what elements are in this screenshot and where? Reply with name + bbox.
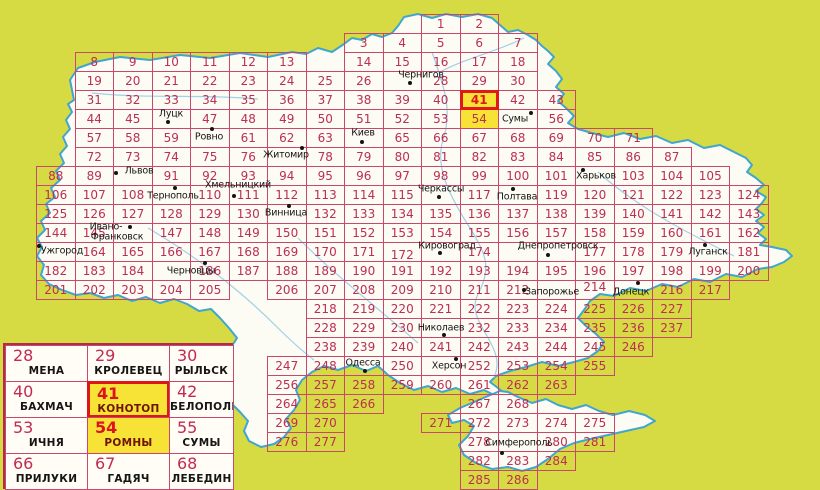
map-sheet-cell-206[interactable]: 206 [267, 280, 307, 300]
map-sheet-cell-20[interactable]: 20 [113, 71, 153, 91]
map-sheet-cell-201[interactable]: 201 [36, 280, 76, 300]
map-sheet-cell-204[interactable]: 204 [152, 280, 192, 300]
map-sheet-cell-136[interactable]: 136 [460, 204, 500, 224]
map-sheet-cell-24[interactable]: 24 [267, 71, 307, 91]
map-sheet-cell-257[interactable]: 257 [306, 375, 346, 395]
map-sheet-cell-160[interactable]: 160 [652, 223, 692, 243]
map-sheet-cell-40[interactable]: 40 [421, 90, 461, 110]
map-sheet-cell-148[interactable]: 148 [190, 223, 230, 243]
map-sheet-cell-100[interactable]: 100 [498, 166, 538, 186]
map-sheet-cell-245[interactable]: 245 [575, 337, 615, 357]
legend-sheet-name: ИЧНЯ [6, 437, 87, 449]
map-sheet-cell-117[interactable]: 117 [460, 185, 500, 205]
map-sheet-cell-233[interactable]: 233 [498, 318, 538, 338]
map-sheet-cell-42[interactable]: 42 [498, 90, 538, 110]
map-sheet-cell-61[interactable]: 61 [229, 128, 269, 148]
map-sheet-cell-129[interactable]: 129 [190, 204, 230, 224]
map-sheet-cell-260[interactable]: 260 [421, 375, 461, 395]
map-sheet-cell-56[interactable]: 56 [537, 109, 577, 129]
map-sheet-cell-191[interactable]: 191 [383, 261, 423, 281]
map-sheet-cell-8[interactable]: 8 [75, 52, 115, 72]
map-sheet-cell-88[interactable]: 88 [36, 166, 76, 186]
map-sheet-cell-57[interactable]: 57 [75, 128, 115, 148]
map-sheet-cell-76[interactable]: 76 [229, 147, 269, 167]
map-sheet-cell-189[interactable]: 189 [306, 261, 346, 281]
map-sheet-cell-198[interactable]: 198 [652, 261, 692, 281]
city-dot [37, 244, 41, 248]
map-sheet-cell-169[interactable]: 169 [267, 242, 307, 262]
city-label: Днепропетровск [518, 241, 599, 252]
map-sheet-cell-222[interactable]: 222 [460, 299, 500, 319]
map-sheet-cell-140[interactable]: 140 [614, 204, 654, 224]
legend-sheet-name: ГАДЯЧ [88, 473, 169, 485]
map-sheet-cell-11[interactable]: 11 [190, 52, 230, 72]
legend-sheet-number: 66 [6, 454, 87, 472]
map-sheet-cell-232[interactable]: 232 [460, 318, 500, 338]
map-sheet-cell-270[interactable]: 270 [306, 413, 346, 433]
city-label: Киев [351, 128, 375, 139]
legend-sheet-number: 30 [170, 346, 233, 364]
map-sheet-cell-81[interactable]: 81 [421, 147, 461, 167]
map-sheet-cell-12[interactable]: 12 [229, 52, 269, 72]
map-sheet-cell-261[interactable]: 261 [460, 375, 500, 395]
city-dot [363, 369, 367, 373]
map-sheet-cell-107[interactable]: 107 [75, 185, 115, 205]
map-sheet-cell-266[interactable]: 266 [344, 394, 384, 414]
map-sheet-cell-216[interactable]: 216 [652, 280, 692, 300]
map-sheet-cell-41[interactable]: 41 [460, 90, 500, 110]
map-sheet-cell-194[interactable]: 194 [498, 261, 538, 281]
map-sheet-cell-94[interactable]: 94 [267, 166, 307, 186]
map-sheet-cell-170[interactable]: 170 [306, 242, 346, 262]
map-sheet-cell-151[interactable]: 151 [306, 223, 346, 243]
legend-cell-68[interactable]: 68ЛЕБЕДИН [169, 453, 234, 490]
legend-cell-29[interactable]: 29КРОЛЕВЕЦ [87, 345, 170, 382]
map-sheet-cell-44[interactable]: 44 [75, 109, 115, 129]
map-sheet-cell-187[interactable]: 187 [229, 261, 269, 281]
map-sheet-cell-101[interactable]: 101 [537, 166, 577, 186]
city-label: Черкассы [418, 184, 464, 195]
map-sheet-cell-66[interactable]: 66 [421, 128, 461, 148]
map-sheet-cell-53[interactable]: 53 [421, 109, 461, 129]
map-sheet-cell-282[interactable]: 282 [460, 451, 500, 471]
map-sheet-cell-205[interactable]: 205 [190, 280, 230, 300]
map-sheet-cell-119[interactable]: 119 [537, 185, 577, 205]
map-sheet-cell-153[interactable]: 153 [383, 223, 423, 243]
map-sheet-cell-2[interactable]: 2 [460, 14, 500, 34]
city-dot [438, 251, 442, 255]
map-sheet-cell-273[interactable]: 273 [498, 413, 538, 433]
map-sheet-cell-223[interactable]: 223 [498, 299, 538, 319]
city-dot [437, 195, 441, 199]
city-label: Полтава [497, 192, 537, 203]
legend-sheet-name: СУМЫ [170, 437, 233, 449]
map-sheet-cell-99[interactable]: 99 [460, 166, 500, 186]
legend-sheet-name: МЕНА [6, 365, 87, 377]
map-sheet-cell-225[interactable]: 225 [575, 299, 615, 319]
map-sheet-cell-97[interactable]: 97 [383, 166, 423, 186]
map-sheet-cell-112[interactable]: 112 [267, 185, 307, 205]
map-sheet-cell-43[interactable]: 43 [537, 90, 577, 110]
map-sheet-cell-49[interactable]: 49 [267, 109, 307, 129]
map-sheet-cell-138[interactable]: 138 [537, 204, 577, 224]
city-label: Николаев [418, 323, 465, 334]
map-sheet-cell-237[interactable]: 237 [652, 318, 692, 338]
map-sheet-cell-73[interactable]: 73 [113, 147, 153, 167]
legend-sheet-number: 41 [90, 384, 167, 402]
map-sheet-cell-193[interactable]: 193 [460, 261, 500, 281]
map-sheet-cell-63[interactable]: 63 [306, 128, 346, 148]
map-sheet-cell-192[interactable]: 192 [421, 261, 461, 281]
map-sheet-cell-51[interactable]: 51 [344, 109, 384, 129]
map-sheet-cell-236[interactable]: 236 [614, 318, 654, 338]
map-sheet-cell-22[interactable]: 22 [190, 71, 230, 91]
map-sheet-cell-259[interactable]: 259 [383, 375, 423, 395]
legend-cell-28[interactable]: 28МЕНА [5, 345, 88, 382]
map-sheet-cell-268[interactable]: 268 [498, 394, 538, 414]
map-sheet-cell-35[interactable]: 35 [229, 90, 269, 110]
map-sheet-cell-78[interactable]: 78 [306, 147, 346, 167]
map-sheet-cell-265[interactable]: 265 [306, 394, 346, 414]
city-dot [511, 187, 515, 191]
map-sheet-cell-218[interactable]: 218 [306, 299, 346, 319]
legend-sheet-name: РОМНЫ [88, 437, 169, 449]
map-sheet-cell-230[interactable]: 230 [383, 318, 423, 338]
map-sheet-cell-166[interactable]: 166 [152, 242, 192, 262]
map-sheet-cell-224[interactable]: 224 [537, 299, 577, 319]
map-sheet-cell-134[interactable]: 134 [383, 204, 423, 224]
map-sheet-cell-124[interactable]: 124 [729, 185, 769, 205]
map-sheet-cell-171[interactable]: 171 [344, 242, 384, 262]
map-sheet-cell-144[interactable]: 144 [36, 223, 76, 243]
map-sheet-cell-121[interactable]: 121 [614, 185, 654, 205]
map-sheet-cell-52[interactable]: 52 [383, 109, 423, 129]
map-sheet-cell-181[interactable]: 181 [729, 242, 769, 262]
map-sheet-cell-200[interactable]: 200 [729, 261, 769, 281]
legend-sheet-number: 54 [88, 418, 169, 436]
map-sheet-cell-217[interactable]: 217 [691, 280, 731, 300]
map-sheet-cell-37[interactable]: 37 [306, 90, 346, 110]
map-sheet-cell-18[interactable]: 18 [498, 52, 538, 72]
map-sheet-cell-284[interactable]: 284 [537, 451, 577, 471]
map-sheet-cell-91[interactable]: 91 [152, 166, 192, 186]
map-sheet-cell-30[interactable]: 30 [498, 71, 538, 91]
map-sheet-cell-70[interactable]: 70 [575, 128, 615, 148]
legend-sheet-number: 53 [6, 418, 87, 436]
map-sheet-cell-141[interactable]: 141 [652, 204, 692, 224]
map-sheet-cell-208[interactable]: 208 [344, 280, 384, 300]
map-sheet-cell-21[interactable]: 21 [152, 71, 192, 91]
map-sheet-cell-253[interactable]: 253 [498, 356, 538, 376]
map-sheet-cell-275[interactable]: 275 [575, 413, 615, 433]
city-label: Житомир [263, 150, 309, 161]
map-sheet-cell-211[interactable]: 211 [460, 280, 500, 300]
city-dot [287, 204, 291, 208]
map-sheet-cell-258[interactable]: 258 [344, 375, 384, 395]
map-sheet-cell-123[interactable]: 123 [691, 185, 731, 205]
map-sheet-cell-196[interactable]: 196 [575, 261, 615, 281]
map-sheet-cell-246[interactable]: 246 [614, 337, 654, 357]
map-sheet-cell-128[interactable]: 128 [152, 204, 192, 224]
map-sheet-cell-256[interactable]: 256 [267, 375, 307, 395]
map-sheet-cell-281[interactable]: 281 [575, 432, 615, 452]
map-sheet-cell-69[interactable]: 69 [537, 128, 577, 148]
map-sheet-cell-168[interactable]: 168 [229, 242, 269, 262]
map-sheet-cell-133[interactable]: 133 [344, 204, 384, 224]
city-dot [114, 171, 118, 175]
map-sheet-cell-104[interactable]: 104 [652, 166, 692, 186]
city-dot [203, 261, 207, 265]
map-sheet-cell-255[interactable]: 255 [575, 356, 615, 376]
map-sheet-cell-106[interactable]: 106 [36, 185, 76, 205]
map-sheet-cell-283[interactable]: 283 [498, 451, 538, 471]
map-sheet-cell-210[interactable]: 210 [421, 280, 461, 300]
map-sheet-cell-83[interactable]: 83 [498, 147, 538, 167]
map-sheet-cell-71[interactable]: 71 [614, 128, 654, 148]
map-sheet-cell-1[interactable]: 1 [421, 14, 461, 34]
map-sheet-cell-31[interactable]: 31 [75, 90, 115, 110]
map-sheet-cell-26[interactable]: 26 [344, 71, 384, 91]
map-sheet-cell-6[interactable]: 6 [460, 33, 500, 53]
map-sheet-cell-14[interactable]: 14 [344, 52, 384, 72]
map-sheet-cell-65[interactable]: 65 [383, 128, 423, 148]
map-sheet-cell-47[interactable]: 47 [190, 109, 230, 129]
map-sheet-cell-188[interactable]: 188 [267, 261, 307, 281]
map-sheet-cell-75[interactable]: 75 [190, 147, 230, 167]
map-sheet-cell-276[interactable]: 276 [267, 432, 307, 452]
map-sheet-cell-277[interactable]: 277 [306, 432, 346, 452]
map-sheet-cell-220[interactable]: 220 [383, 299, 423, 319]
map-sheet-cell-214[interactable]: 214 [575, 280, 615, 300]
map-sheet-cell-54[interactable]: 54 [460, 109, 500, 129]
map-sheet-cell-137[interactable]: 137 [498, 204, 538, 224]
map-sheet-cell-59[interactable]: 59 [152, 128, 192, 148]
map-sheet-cell-167[interactable]: 167 [190, 242, 230, 262]
map-sheet-cell-50[interactable]: 50 [306, 109, 346, 129]
map-sheet-cell-13[interactable]: 13 [267, 52, 307, 72]
map-sheet-cell-221[interactable]: 221 [421, 299, 461, 319]
city-dot [408, 81, 412, 85]
map-sheet-cell-80[interactable]: 80 [383, 147, 423, 167]
map-sheet-cell-68[interactable]: 68 [498, 128, 538, 148]
map-sheet-cell-23[interactable]: 23 [229, 71, 269, 91]
map-sheet-cell-10[interactable]: 10 [152, 52, 192, 72]
city-label: Тернополь [147, 191, 199, 202]
map-sheet-cell-229[interactable]: 229 [344, 318, 384, 338]
map-sheet-cell-165[interactable]: 165 [113, 242, 153, 262]
legend-cell-66[interactable]: 66ПРИЛУКИ [5, 453, 88, 490]
map-sheet-cell-269[interactable]: 269 [267, 413, 307, 433]
map-sheet-cell-286[interactable]: 286 [498, 470, 538, 490]
map-sheet-cell-32[interactable]: 32 [113, 90, 153, 110]
city-dot [300, 146, 304, 150]
map-sheet-cell-87[interactable]: 87 [652, 147, 692, 167]
city-dot [636, 281, 640, 285]
map-sheet-cell-114[interactable]: 114 [344, 185, 384, 205]
map-sheet-cell-238[interactable]: 238 [306, 337, 346, 357]
city-dot [529, 111, 533, 115]
legend-cell-67[interactable]: 67ГАДЯЧ [87, 453, 170, 490]
map-sheet-cell-125[interactable]: 125 [36, 204, 76, 224]
city-label: Винница [265, 208, 307, 219]
map-sheet-cell-7[interactable]: 7 [498, 33, 538, 53]
legend-sheet-name: ПРИЛУКИ [6, 473, 87, 485]
city-dot [360, 140, 364, 144]
map-sheet-cell-17[interactable]: 17 [460, 52, 500, 72]
map-sheet-cell-96[interactable]: 96 [344, 166, 384, 186]
legend-sheet-number: 29 [88, 346, 169, 364]
map-sheet-cell-178[interactable]: 178 [614, 242, 654, 262]
map-sheet-cell-271[interactable]: 271 [421, 413, 461, 433]
map-sheet-cell-274[interactable]: 274 [537, 413, 577, 433]
map-sheet-cell-139[interactable]: 139 [575, 204, 615, 224]
map-sheet-cell-250[interactable]: 250 [383, 356, 423, 376]
map-sheet-cell-244[interactable]: 244 [537, 337, 577, 357]
map-sheet-cell-172[interactable]: 172 [383, 242, 423, 262]
map-sheet-cell-3[interactable]: 3 [344, 33, 384, 53]
map-sheet-cell-182[interactable]: 182 [36, 261, 76, 281]
map-sheet-cell-227[interactable]: 227 [652, 299, 692, 319]
map-sheet-cell-254[interactable]: 254 [537, 356, 577, 376]
city-label: Ровно [195, 132, 223, 143]
map-sheet-cell-19[interactable]: 19 [75, 71, 115, 91]
map-sheet-cell-241[interactable]: 241 [421, 337, 461, 357]
map-sheet-cell-33[interactable]: 33 [152, 90, 192, 110]
map-sheet-cell-219[interactable]: 219 [344, 299, 384, 319]
map-sheet-cell-72[interactable]: 72 [75, 147, 115, 167]
map-sheet-cell-142[interactable]: 142 [691, 204, 731, 224]
map-sheet-cell-25[interactable]: 25 [306, 71, 346, 91]
map-sheet-cell-84[interactable]: 84 [537, 147, 577, 167]
map-sheet-cell-82[interactable]: 82 [460, 147, 500, 167]
city-label: Франковск [91, 232, 144, 243]
map-sheet-cell-67[interactable]: 67 [460, 128, 500, 148]
map-sheet-cell-45[interactable]: 45 [113, 109, 153, 129]
city-dot [173, 186, 177, 190]
map-sheet-cell-130[interactable]: 130 [229, 204, 269, 224]
map-sheet-cell-135[interactable]: 135 [421, 204, 461, 224]
city-dot [581, 168, 585, 172]
legend-cell-41[interactable]: 41КОНОТОП [87, 381, 170, 418]
city-label: Чернигов [398, 70, 444, 81]
map-sheet-cell-105[interactable]: 105 [691, 166, 731, 186]
map-sheet-cell-228[interactable]: 228 [306, 318, 346, 338]
legend-cell-30[interactable]: 30РЫЛЬСК [169, 345, 234, 382]
legend-table: 28МЕНА29КРОЛЕВЕЦ30РЫЛЬСК40БАХМАЧ41КОНОТО… [3, 343, 233, 489]
map-sheet-cell-62[interactable]: 62 [267, 128, 307, 148]
map-sheet-cell-202[interactable]: 202 [75, 280, 115, 300]
map-sheet-cell-74[interactable]: 74 [152, 147, 192, 167]
map-sheet-cell-183[interactable]: 183 [75, 261, 115, 281]
map-sheet-cell-263[interactable]: 263 [537, 375, 577, 395]
map-sheet-cell-285[interactable]: 285 [460, 470, 500, 490]
map-sheet-cell-143[interactable]: 143 [729, 204, 769, 224]
map-sheet-cell-179[interactable]: 179 [652, 242, 692, 262]
map-sheet-cell-122[interactable]: 122 [652, 185, 692, 205]
map-sheet-cell-120[interactable]: 120 [575, 185, 615, 205]
map-sheet-cell-29[interactable]: 29 [460, 71, 500, 91]
city-label: Сумы [502, 114, 528, 125]
map-sheet-cell-5[interactable]: 5 [421, 33, 461, 53]
city-label: Харьков [576, 171, 616, 182]
map-sheet-cell-195[interactable]: 195 [537, 261, 577, 281]
map-sheet-cell-262[interactable]: 262 [498, 375, 538, 395]
map-sheet-cell-4[interactable]: 4 [383, 33, 423, 53]
map-sheet-cell-58[interactable]: 58 [113, 128, 153, 148]
map-sheet-cell-86[interactable]: 86 [614, 147, 654, 167]
city-dot [500, 451, 504, 455]
map-sheet-cell-115[interactable]: 115 [383, 185, 423, 205]
map-sheet-cell-113[interactable]: 113 [306, 185, 346, 205]
map-sheet-cell-199[interactable]: 199 [691, 261, 731, 281]
legend-cell-54[interactable]: 54РОМНЫ [87, 417, 170, 454]
map-sheet-cell-48[interactable]: 48 [229, 109, 269, 129]
map-sheet-cell-234[interactable]: 234 [537, 318, 577, 338]
map-sheet-cell-203[interactable]: 203 [113, 280, 153, 300]
map-sheet-cell-235[interactable]: 235 [575, 318, 615, 338]
map-sheet-cell-264[interactable]: 264 [267, 394, 307, 414]
map-sheet-cell-132[interactable]: 132 [306, 204, 346, 224]
map-sheet-cell-162[interactable]: 162 [729, 223, 769, 243]
map-sheet-cell-95[interactable]: 95 [306, 166, 346, 186]
legend-cell-53[interactable]: 53ИЧНЯ [5, 417, 88, 454]
map-sheet-cell-89[interactable]: 89 [75, 166, 115, 186]
map-sheet-cell-39[interactable]: 39 [383, 90, 423, 110]
map-sheet-cell-239[interactable]: 239 [344, 337, 384, 357]
map-sheet-cell-209[interactable]: 209 [383, 280, 423, 300]
map-sheet-cell-147[interactable]: 147 [152, 223, 192, 243]
map-sheet-cell-38[interactable]: 38 [344, 90, 384, 110]
map-sheet-cell-243[interactable]: 243 [498, 337, 538, 357]
legend-sheet-number: 28 [6, 346, 87, 364]
city-label: Ужгород [41, 246, 83, 257]
map-sheet-cell-34[interactable]: 34 [190, 90, 230, 110]
map-sheet-cell-197[interactable]: 197 [614, 261, 654, 281]
legend-cell-42[interactable]: 42БЕЛОПОЛЬЕ [169, 381, 234, 418]
map-sheet-cell-248[interactable]: 248 [306, 356, 346, 376]
map-sheet-cell-149[interactable]: 149 [229, 223, 269, 243]
legend-sheet-number: 55 [170, 418, 233, 436]
map-sheet-cell-272[interactable]: 272 [460, 413, 500, 433]
map-sheet-cell-159[interactable]: 159 [614, 223, 654, 243]
legend-sheet-number: 40 [6, 382, 87, 400]
map-sheet-cell-36[interactable]: 36 [267, 90, 307, 110]
city-label: Черновцы [167, 266, 215, 277]
map-sheet-cell-247[interactable]: 247 [267, 356, 307, 376]
map-sheet-cell-9[interactable]: 9 [113, 52, 153, 72]
map-sheet-cell-85[interactable]: 85 [575, 147, 615, 167]
map-sheet-cell-240[interactable]: 240 [383, 337, 423, 357]
legend-sheet-name: РЫЛЬСК [170, 365, 233, 377]
legend-sheet-name: КРОЛЕВЕЦ [88, 365, 169, 377]
map-sheet-cell-190[interactable]: 190 [344, 261, 384, 281]
map-sheet-cell-79[interactable]: 79 [344, 147, 384, 167]
legend-cell-40[interactable]: 40БАХМАЧ [5, 381, 88, 418]
map-sheet-cell-152[interactable]: 152 [344, 223, 384, 243]
map-sheet-cell-207[interactable]: 207 [306, 280, 346, 300]
map-sheet-cell-103[interactable]: 103 [614, 166, 654, 186]
city-dot [442, 333, 446, 337]
map-sheet-cell-184[interactable]: 184 [113, 261, 153, 281]
map-sheet-cell-226[interactable]: 226 [614, 299, 654, 319]
legend-sheet-number: 42 [170, 382, 233, 400]
map-sheet-cell-161[interactable]: 161 [691, 223, 731, 243]
map-sheet-cell-242[interactable]: 242 [460, 337, 500, 357]
map-sheet-cell-150[interactable]: 150 [267, 223, 307, 243]
map-sheet-cell-267[interactable]: 267 [460, 394, 500, 414]
city-dot [454, 357, 458, 361]
legend-cell-55[interactable]: 55СУМЫ [169, 417, 234, 454]
